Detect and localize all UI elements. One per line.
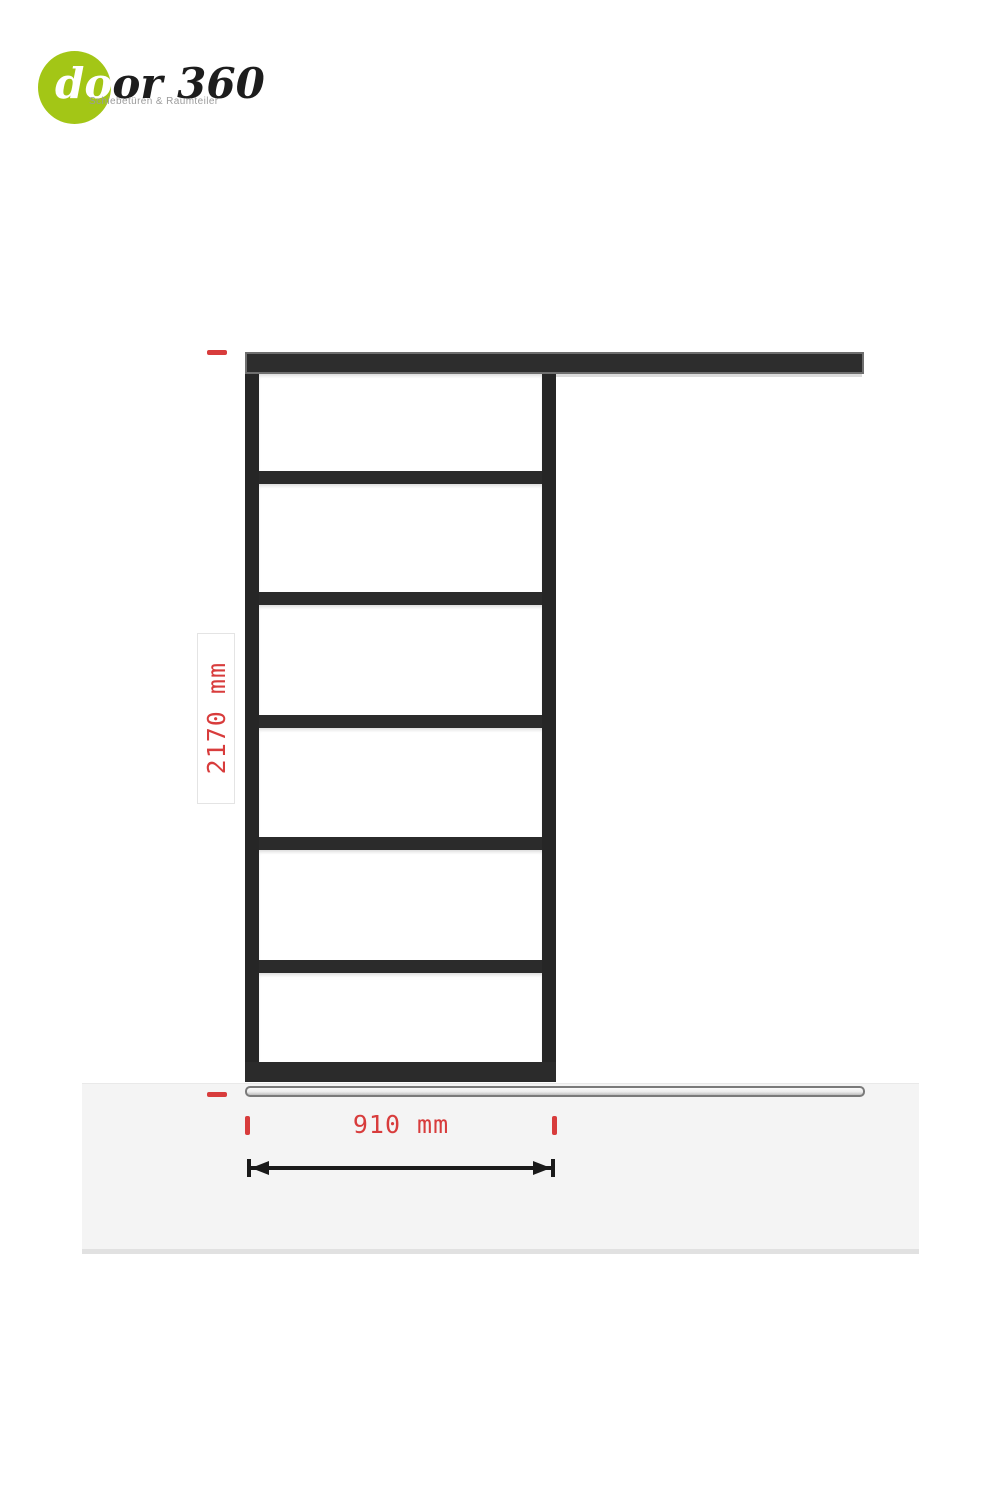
muntin-bar-1: [259, 471, 542, 484]
glass-pane-5: [259, 850, 542, 960]
top-rail-shadow: [556, 374, 862, 377]
muntin-bar-5: [259, 960, 542, 973]
width-dimension-label: 910 mm: [245, 1110, 557, 1139]
door-right-stile: [542, 374, 556, 1082]
height-dim-bottom-marker: [207, 1092, 227, 1097]
glass-pane-3: [259, 605, 542, 715]
glass-pane-2: [259, 484, 542, 592]
height-dimension-value: 2170 mm: [202, 662, 231, 774]
door-bottom-rail: [245, 1062, 556, 1082]
door-glazing: [259, 374, 542, 1062]
floor-guide-track: [245, 1086, 865, 1097]
height-dimension-label: 2170 mm: [197, 633, 235, 804]
width-dimension-line: [243, 1156, 559, 1180]
muntin-bar-2: [259, 592, 542, 605]
muntin-bar-4: [259, 837, 542, 850]
door-left-stile: [245, 374, 259, 1082]
muntin-bar-3: [259, 715, 542, 728]
door-frame: [245, 374, 556, 1082]
glass-pane-6: [259, 973, 542, 1062]
top-track-rail: [245, 352, 864, 374]
height-dim-top-marker: [207, 350, 227, 355]
glass-pane-4: [259, 728, 542, 837]
logo-tagline: Schiebetüren & Raumteiler: [89, 96, 219, 107]
glass-pane-1: [259, 374, 542, 471]
